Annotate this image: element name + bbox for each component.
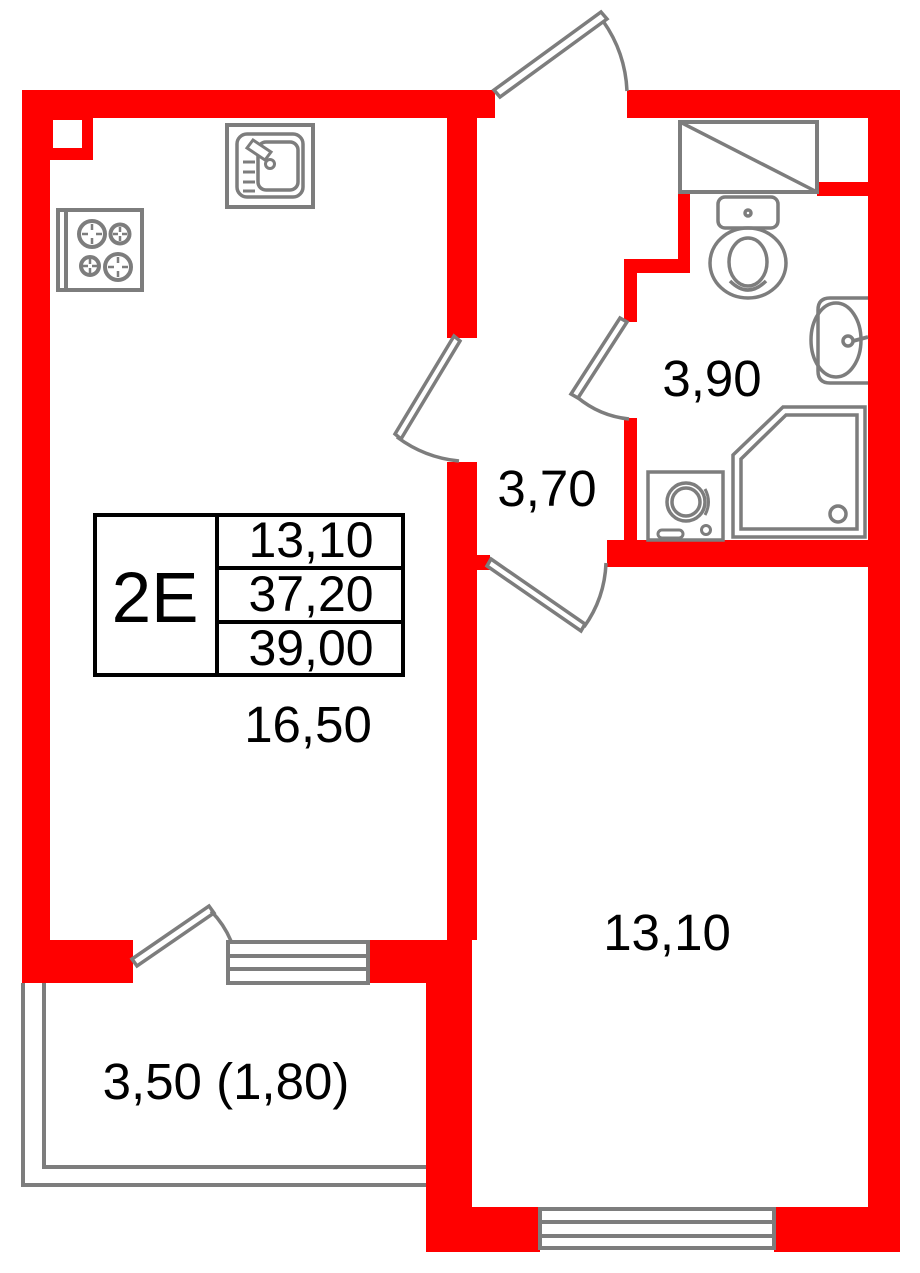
toilet-bowl-inner xyxy=(729,238,767,286)
toilet-button xyxy=(745,210,751,216)
unit-type-label: 2E xyxy=(112,559,199,638)
balcony-area-label: 3,50 (1,80) xyxy=(103,1053,350,1110)
bathroom-area-label: 3,90 xyxy=(662,350,761,407)
hallway-area-label: 3,70 xyxy=(497,460,596,517)
door-leaf xyxy=(571,318,627,398)
vent-shaft xyxy=(680,122,817,192)
washer-door-inner xyxy=(672,488,700,516)
wall-segment xyxy=(774,1207,900,1252)
door-leaf xyxy=(132,906,214,966)
wall-segment xyxy=(624,259,690,273)
wall-segment xyxy=(447,462,477,940)
wall-segment xyxy=(22,940,133,983)
wall-segment xyxy=(868,90,900,1252)
balcony-window xyxy=(228,942,368,983)
bathroom-door xyxy=(571,318,629,419)
shower-drain xyxy=(830,506,846,522)
floor-plan-page: 2E 13,10 37,20 39,00 16,50 3,70 3,90 13,… xyxy=(0,0,920,1273)
shower xyxy=(733,407,865,537)
washer-detergent-tray xyxy=(658,530,683,538)
wall-segment xyxy=(447,118,477,338)
bedroom-area-label: 13,10 xyxy=(603,904,731,961)
door-leaf xyxy=(494,12,607,97)
door-leaf xyxy=(487,559,585,631)
wall-segment xyxy=(426,1207,540,1252)
washing-machine xyxy=(648,472,723,540)
wall-segment xyxy=(817,182,868,196)
unit-area-value: 37,20 xyxy=(248,566,373,622)
door-swing-arc xyxy=(577,397,629,419)
faucet-dot xyxy=(266,160,275,169)
stove xyxy=(58,210,142,290)
door-swing-arc xyxy=(397,437,459,461)
floor-plan: 2E 13,10 37,20 39,00 16,50 3,70 3,90 13,… xyxy=(0,0,920,1273)
entrance-door xyxy=(494,12,627,97)
wall-segment xyxy=(624,273,637,322)
unit-total-area-value: 39,00 xyxy=(248,620,373,676)
kitchen-sink xyxy=(227,125,313,207)
wall-segment xyxy=(627,90,898,118)
door-leaf xyxy=(395,336,460,439)
toilet xyxy=(710,197,786,298)
balcony-door xyxy=(132,906,231,966)
door-swing-arc xyxy=(584,563,606,627)
door-swing-arc xyxy=(603,21,627,91)
wall-segment xyxy=(426,940,472,1252)
washbasin xyxy=(811,298,868,383)
washer-knob xyxy=(702,526,711,535)
bedroom-window xyxy=(540,1209,774,1248)
toilet-tank xyxy=(718,197,778,228)
kitchen-living-area-label: 16,50 xyxy=(244,696,372,753)
wall-segment xyxy=(22,90,495,118)
door-swing-arc xyxy=(211,911,231,941)
unit-living-area-value: 13,10 xyxy=(248,512,373,568)
wall-segment xyxy=(607,540,900,567)
drainboard-lines xyxy=(243,162,255,191)
wall-notch xyxy=(53,120,82,148)
kitchen-door xyxy=(395,336,460,461)
bedroom-door xyxy=(487,559,606,631)
wall-segment xyxy=(22,90,50,983)
washbasin-tap xyxy=(843,336,853,346)
